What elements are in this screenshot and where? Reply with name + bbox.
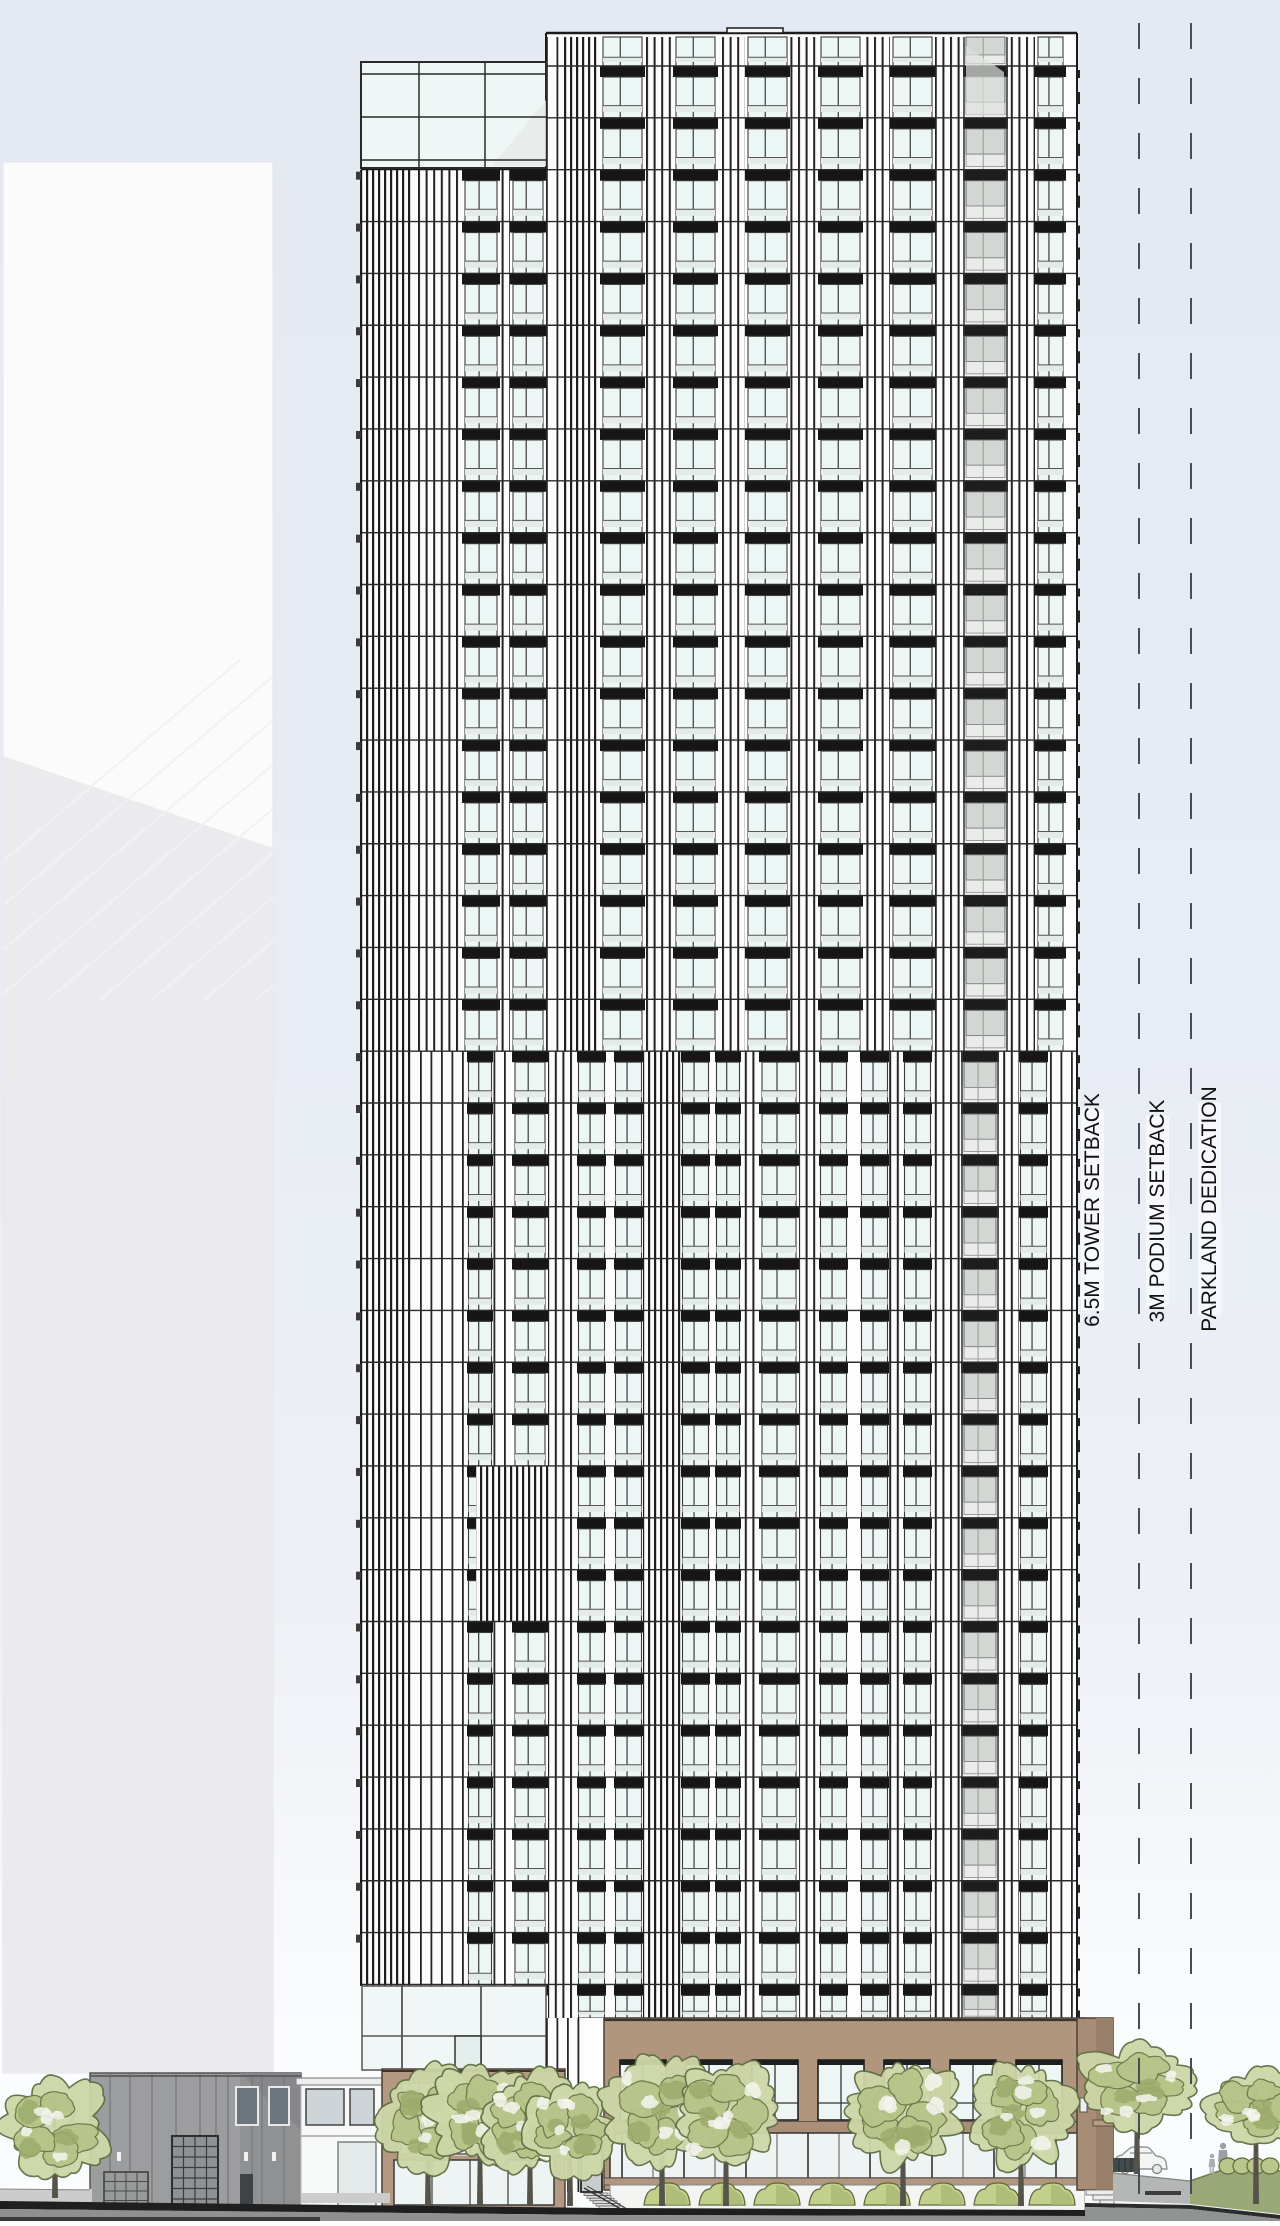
svg-text:PARKLAND DEDICATION: PARKLAND DEDICATION (1198, 1086, 1221, 1331)
svg-text:3M PODIUM SETBACK: 3M PODIUM SETBACK (1146, 1100, 1169, 1323)
svg-text:6.5M TOWER SETBACK: 6.5M TOWER SETBACK (1081, 1093, 1104, 1327)
